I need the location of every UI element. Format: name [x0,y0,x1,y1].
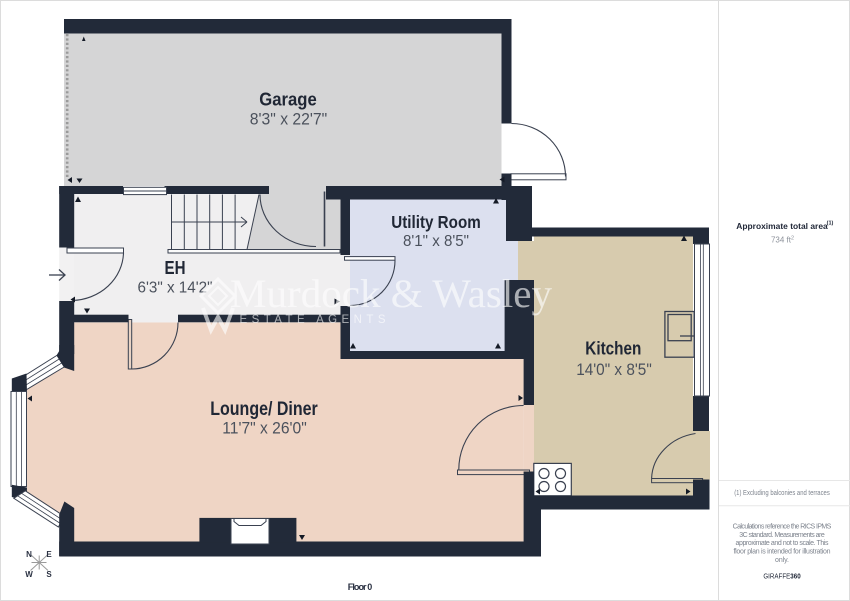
svg-text:(1): (1) [827,221,834,227]
svg-text:EH: EH [165,258,186,278]
svg-text:8'1" x 8'5": 8'1" x 8'5" [403,233,469,250]
svg-text:floor plan is intended for ill: floor plan is intended for illustration [734,549,831,556]
svg-text:14'0" x 8'5": 14'0" x 8'5" [576,361,652,379]
svg-text:approximate and not to scale.: approximate and not to scale. This [736,540,830,547]
svg-text:Lounge/ Diner: Lounge/ Diner [210,399,318,420]
svg-text:only.: only. [775,557,789,564]
svg-text:(1) Excluding balconies and te: (1) Excluding balconies and terraces [734,490,830,497]
svg-text:Murdock & Wasley: Murdock & Wasley [230,271,552,316]
svg-text:Approximate total area: Approximate total area [736,222,828,231]
svg-text:W: W [25,570,33,579]
svg-text:Calculations reference the RIC: Calculations reference the RICS IPMS [733,523,832,530]
svg-text:2: 2 [791,236,794,242]
svg-text:3C standard. Measurements are: 3C standard. Measurements are [739,532,825,539]
svg-text:Utility Room: Utility Room [391,212,481,232]
svg-text:8'3" x 22'7": 8'3" x 22'7" [250,110,328,128]
svg-text:Kitchen: Kitchen [585,339,641,359]
svg-text:734 ft: 734 ft [771,236,792,245]
svg-text:Garage: Garage [259,89,317,110]
svg-text:E: E [46,550,52,559]
svg-text:N: N [26,550,32,559]
svg-text:S: S [46,570,52,579]
svg-text:11'7" x 26'0": 11'7" x 26'0" [222,418,307,437]
svg-text:Floor 0: Floor 0 [348,582,373,592]
svg-text:GIRAFFE360: GIRAFFE360 [763,572,800,581]
